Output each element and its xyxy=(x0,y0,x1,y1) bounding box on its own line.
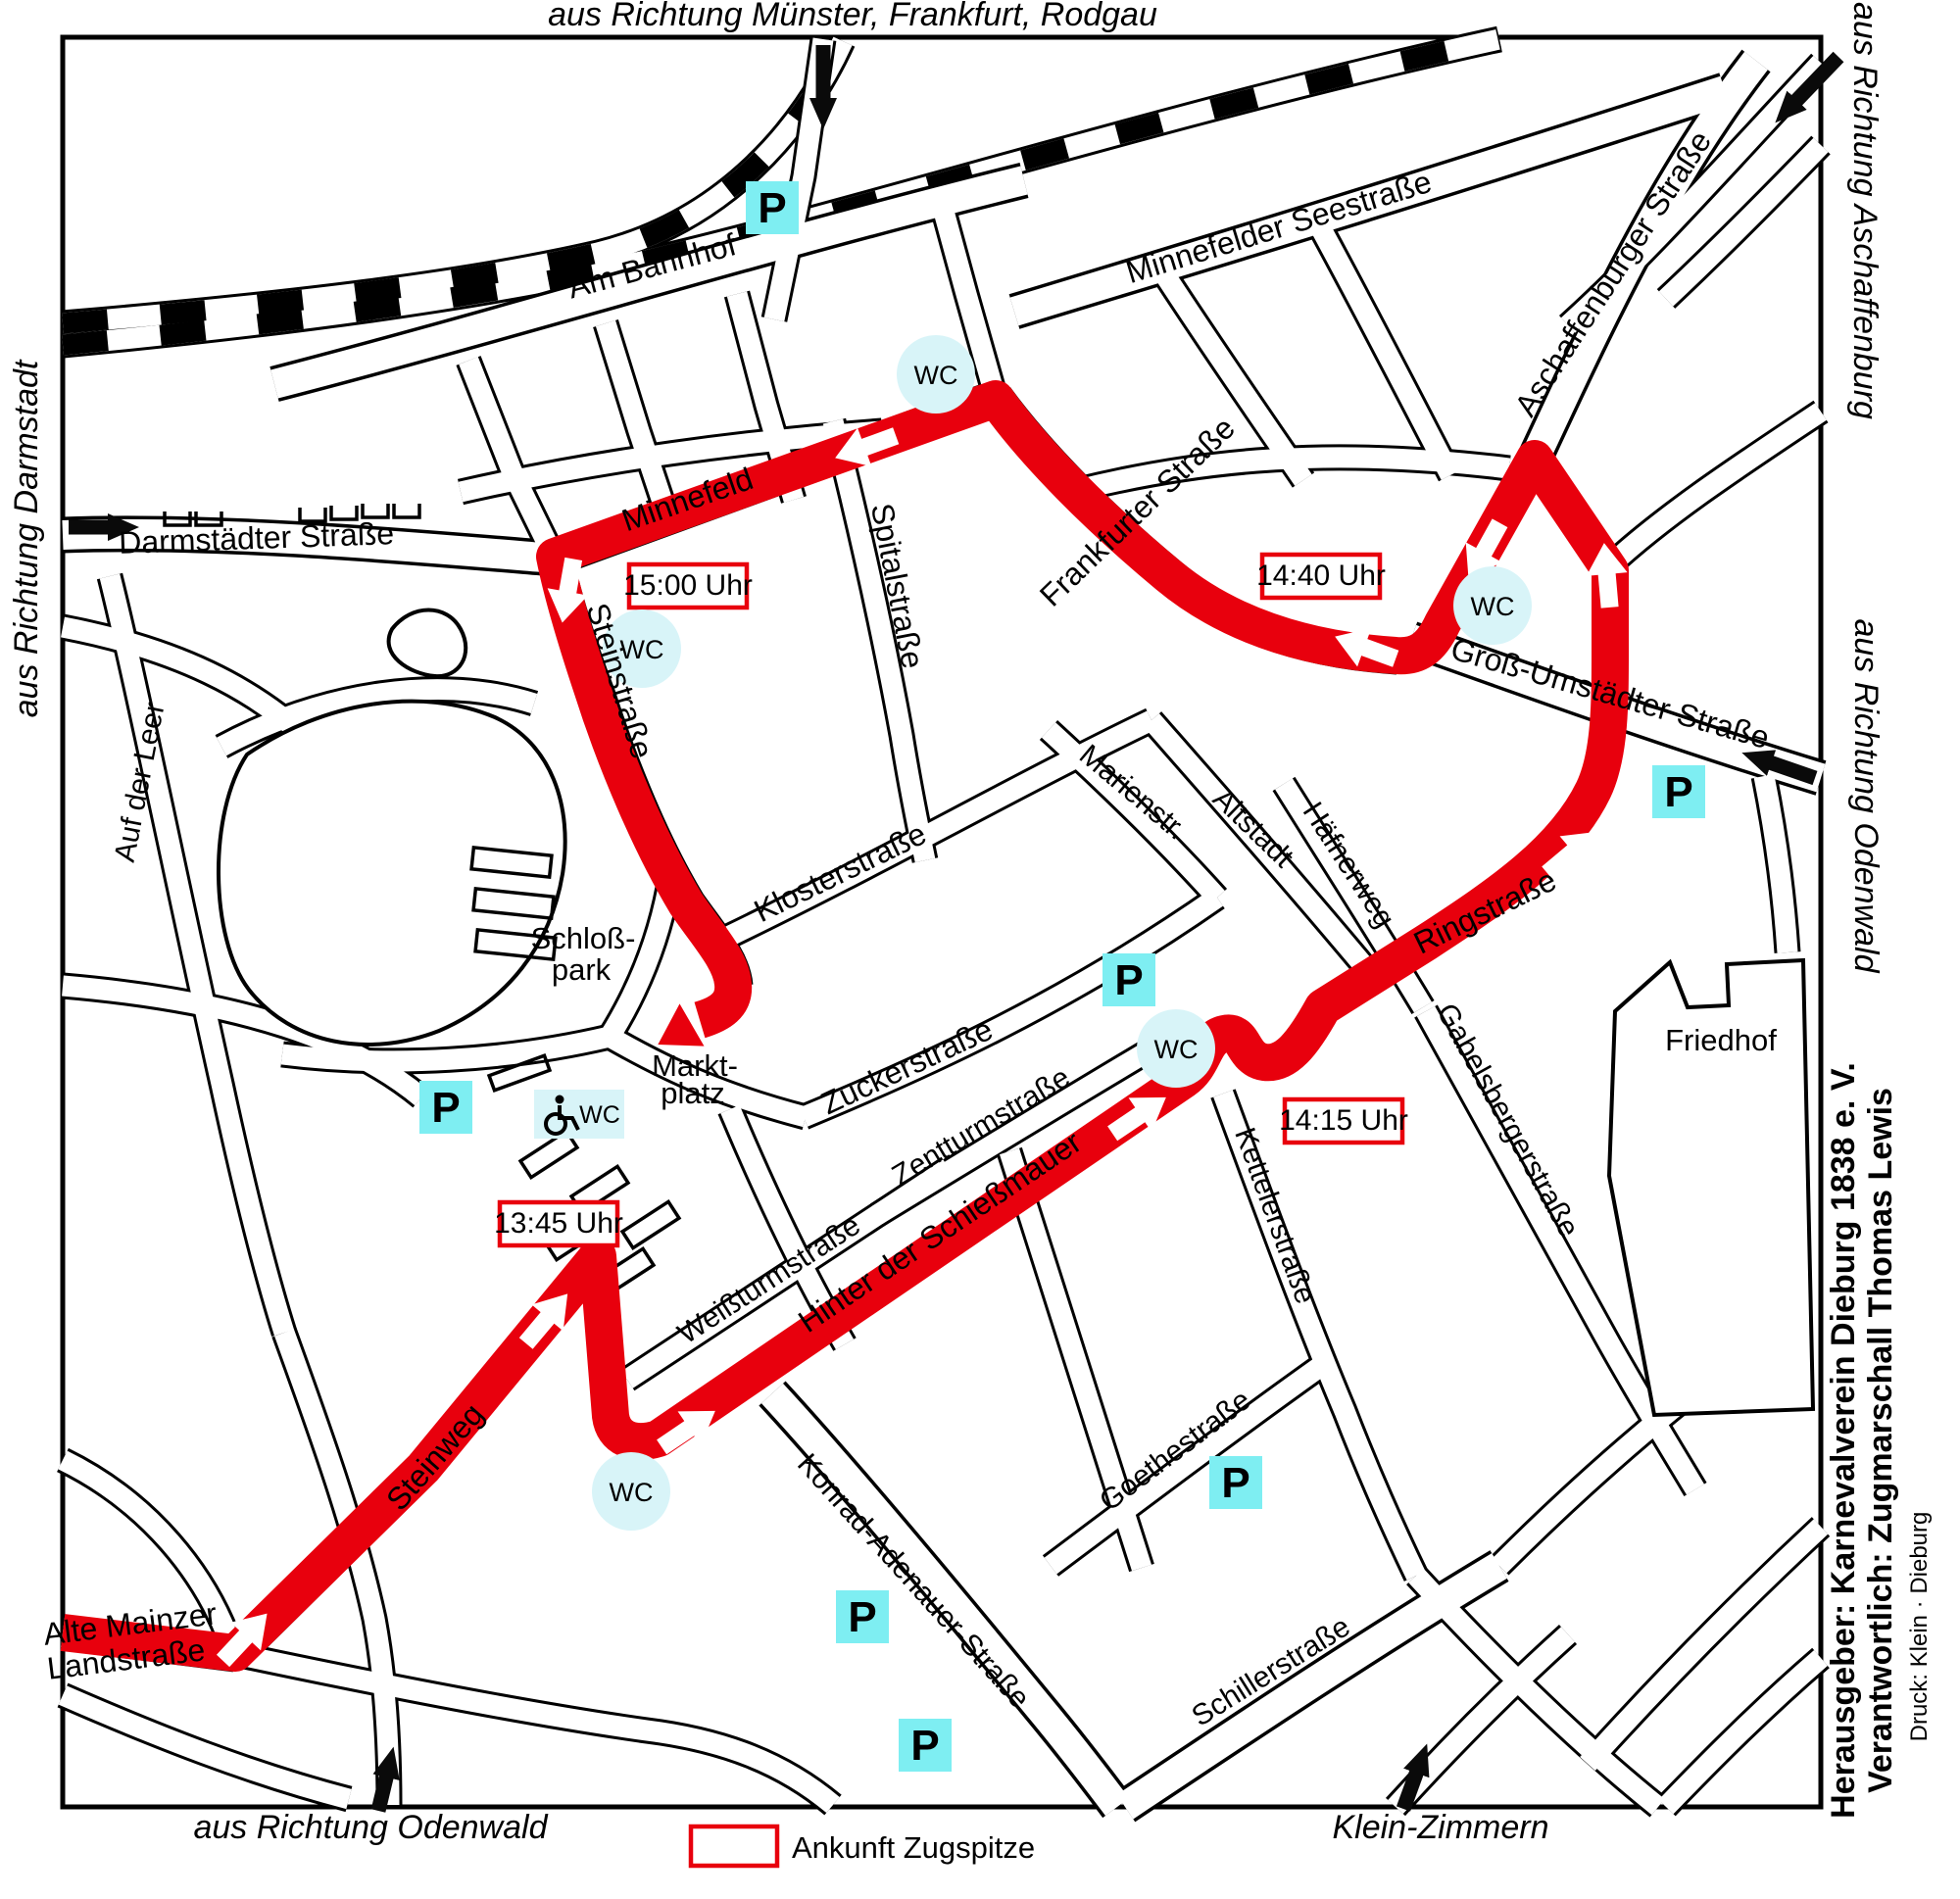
arrow-from-odenwald-south-icon xyxy=(378,1770,388,1811)
label-from-aschaffenburg: aus Richtung Aschaffenburg xyxy=(1846,2,1884,419)
parking-icon: P xyxy=(910,1722,939,1770)
accessible-wc-marker: WC xyxy=(534,1090,624,1139)
parking-marker: P xyxy=(1652,765,1705,818)
wc-marker: WC xyxy=(1137,1009,1215,1088)
label-schlosspark-line1: Schloß- xyxy=(531,921,636,955)
parking-icon: P xyxy=(1114,956,1143,1004)
wc-icon: WC xyxy=(914,361,958,390)
parade-route-map-page: 15:00 Uhr 14:40 Uhr 14:15 Uhr 13:45 Uhr … xyxy=(0,0,1960,1894)
label-marktplatz-line2: platz xyxy=(661,1076,724,1110)
legend-arrival-label: Ankunft Zugspitze xyxy=(792,1830,1035,1865)
label-from-odenwald-south: aus Richtung Odenwald xyxy=(193,1809,548,1846)
wc-marker: WC xyxy=(897,335,975,414)
parking-icon: P xyxy=(758,184,786,232)
time-box-1415: 14:15 Uhr xyxy=(1279,1099,1408,1143)
parking-marker: P xyxy=(1102,953,1155,1006)
time-label: 14:40 Uhr xyxy=(1256,560,1386,592)
wc-icon: WC xyxy=(579,1101,620,1129)
wc-icon: WC xyxy=(610,1478,654,1507)
wc-icon: WC xyxy=(1471,592,1515,621)
label-friedhof: Friedhof xyxy=(1665,1023,1777,1057)
label-klein-zimmern: Klein-Zimmern xyxy=(1332,1809,1548,1846)
time-box-1440: 14:40 Uhr xyxy=(1256,555,1386,598)
legend-swatch xyxy=(691,1826,777,1866)
parking-marker: P xyxy=(899,1719,952,1772)
time-label: 14:15 Uhr xyxy=(1279,1104,1408,1137)
wc-marker: WC xyxy=(592,1452,670,1531)
label-from-muenster: aus Richtung Münster, Frankfurt, Rodgau xyxy=(548,0,1157,33)
parking-marker: P xyxy=(746,181,799,234)
parking-marker: P xyxy=(419,1081,472,1134)
parking-marker: P xyxy=(1209,1456,1262,1509)
credit-responsible: Verantwortlich: Zugmarschall Thomas Lewi… xyxy=(1862,1088,1899,1793)
label-from-odenwald-east: aus Richtung Odenwald xyxy=(1847,618,1885,973)
wc-icon: WC xyxy=(1154,1035,1199,1064)
label-from-darmstadt: aus Richtung Darmstadt xyxy=(8,359,45,717)
time-label: 13:45 Uhr xyxy=(494,1207,623,1240)
legend: Ankunft Zugspitze xyxy=(691,1826,1035,1866)
credit-print: Druck: Klein · Dieburg xyxy=(1906,1512,1933,1742)
label-schlosspark-line2: park xyxy=(552,952,612,987)
parking-icon: P xyxy=(1664,768,1692,816)
credit-publisher: Herausgeber: Karnevalverein Dieburg 1838… xyxy=(1825,1062,1862,1819)
parking-icon: P xyxy=(431,1084,460,1132)
time-label: 15:00 Uhr xyxy=(623,569,753,602)
dieburg-parade-map: 15:00 Uhr 14:40 Uhr 14:15 Uhr 13:45 Uhr … xyxy=(0,0,1960,1894)
parking-icon: P xyxy=(1221,1459,1249,1507)
parking-icon: P xyxy=(848,1593,876,1641)
time-box-1500: 15:00 Uhr xyxy=(623,564,753,608)
parking-marker: P xyxy=(836,1590,889,1643)
time-box-1345: 13:45 Uhr xyxy=(494,1202,623,1245)
